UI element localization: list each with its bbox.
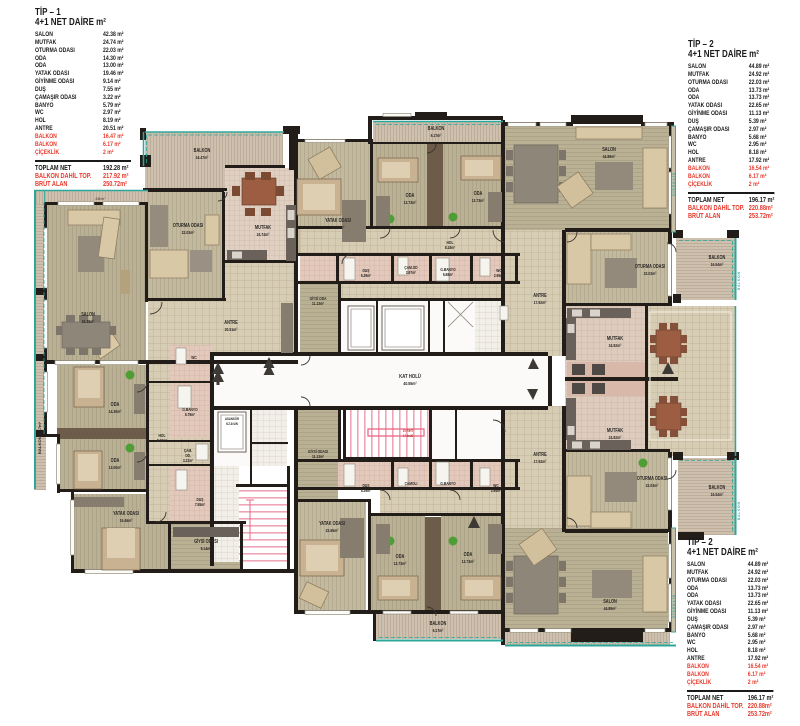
svg-text:5.79m²: 5.79m² <box>185 413 196 417</box>
svg-text:9.14m²: 9.14m² <box>201 546 212 552</box>
svg-text:ODA: ODA <box>464 552 473 558</box>
svg-text:ODA: ODA <box>111 458 120 464</box>
svg-text:BALKON: BALKON <box>709 255 726 261</box>
svg-text:2.95m²: 2.95m² <box>494 274 505 278</box>
svg-text:8.19m²: 8.19m² <box>157 439 168 443</box>
svg-text:G.BANYO: G.BANYO <box>440 482 455 486</box>
svg-text:ASANSÖR: ASANSÖR <box>225 416 240 422</box>
svg-text:17.92m²: 17.92m² <box>534 459 547 465</box>
svg-text:44.89m²: 44.89m² <box>604 606 617 612</box>
svg-text:DUŞ: DUŞ <box>363 269 370 273</box>
svg-text:Ç İ Ç E K L İ K: Ç İ Ç E K L İ K <box>672 594 676 618</box>
svg-text:SALON: SALON <box>81 312 95 318</box>
svg-text:2.97m²: 2.97m² <box>406 487 417 491</box>
svg-text:MUTFAK: MUTFAK <box>255 225 272 231</box>
svg-text:GİYSİ ODA: GİYSİ ODA <box>310 296 327 302</box>
svg-text:ODA: ODA <box>474 191 483 197</box>
svg-text:ÇAM.OD: ÇAM.OD <box>404 266 417 270</box>
svg-text:2.97m²: 2.97m² <box>189 361 200 365</box>
svg-text:17.5x28: 17.5x28 <box>403 434 413 438</box>
svg-text:YATAK ODASI: YATAK ODASI <box>113 511 139 517</box>
svg-text:20.51m²: 20.51m² <box>225 327 238 333</box>
svg-text:OD.: OD. <box>185 454 191 458</box>
svg-text:2.06 m²: 2.06 m² <box>95 197 104 201</box>
svg-text:ODA: ODA <box>111 402 120 408</box>
svg-text:DUŞ: DUŞ <box>363 484 370 488</box>
svg-text:ÇAM.: ÇAM. <box>184 449 192 453</box>
svg-text:13.00m²: 13.00m² <box>109 465 122 471</box>
svg-text:ODA: ODA <box>396 554 405 560</box>
svg-text:14.30m²: 14.30m² <box>109 409 122 415</box>
svg-text:10 RIHT: 10 RIHT <box>403 429 413 433</box>
svg-text:B A L K O N: B A L K O N <box>737 502 741 520</box>
svg-text:MUTFAK: MUTFAK <box>607 428 624 434</box>
svg-text:22.03m²: 22.03m² <box>644 271 657 277</box>
svg-text:B A L K O N: B A L K O N <box>737 272 741 290</box>
svg-text:6.17m²: 6.17m² <box>433 628 444 634</box>
svg-text:24.74m²: 24.74m² <box>257 232 270 238</box>
svg-text:GİYSİ ODASI: GİYSİ ODASI <box>194 537 218 544</box>
svg-text:22.65m²: 22.65m² <box>326 528 339 534</box>
svg-text:DUŞ: DUŞ <box>197 498 204 502</box>
svg-text:ANTRE: ANTRE <box>533 452 546 458</box>
svg-text:5.68m²: 5.68m² <box>443 273 454 277</box>
svg-text:42.38m²: 42.38m² <box>82 319 95 325</box>
svg-text:YATAK ODASI: YATAK ODASI <box>319 521 345 527</box>
svg-text:G.BANYO: G.BANYO <box>182 408 197 412</box>
svg-text:SALON: SALON <box>602 147 616 153</box>
svg-text:13.73m²: 13.73m² <box>462 559 475 565</box>
svg-text:YATAK ODASI: YATAK ODASI <box>325 218 351 224</box>
svg-text:ANTRE: ANTRE <box>533 293 546 299</box>
svg-text:11.13m²: 11.13m² <box>312 302 325 306</box>
svg-text:BALKON: BALKON <box>194 148 211 154</box>
svg-text:2.97m²: 2.97m² <box>406 271 417 275</box>
svg-text:5.39m²: 5.39m² <box>361 274 372 278</box>
svg-text:MUTFAK: MUTFAK <box>607 336 624 342</box>
svg-text:16.47m²: 16.47m² <box>196 155 209 161</box>
svg-text:6.17m²: 6.17m² <box>431 133 442 139</box>
svg-text:16.54m²: 16.54m² <box>711 262 724 268</box>
svg-text:7.55m²: 7.55m² <box>195 503 206 507</box>
svg-text:13.73m²: 13.73m² <box>394 561 407 567</box>
svg-text:KZ.3#UN: KZ.3#UN <box>226 422 238 426</box>
svg-text:WC: WC <box>493 484 499 488</box>
svg-text:5.39m²: 5.39m² <box>361 489 372 493</box>
svg-text:BALKON: BALKON <box>709 485 726 491</box>
svg-text:OTURMA ODASI: OTURMA ODASI <box>173 223 203 229</box>
svg-text:ODA: ODA <box>406 193 415 199</box>
svg-text:WC: WC <box>496 269 502 273</box>
svg-text:HOL: HOL <box>159 434 167 438</box>
svg-text:BALKON: BALKON <box>428 126 445 132</box>
svg-text:16.54m²: 16.54m² <box>711 492 724 498</box>
svg-text:8.18m²: 8.18m² <box>445 246 456 250</box>
svg-text:GİYSİ ODASI: GİYSİ ODASI <box>308 449 328 455</box>
svg-text:22.65m²: 22.65m² <box>332 225 345 231</box>
svg-text:G.BANYO: G.BANYO <box>440 268 455 272</box>
svg-text:2.95m²: 2.95m² <box>491 489 502 493</box>
svg-text:WC: WC <box>191 356 197 360</box>
svg-text:13.73m²: 13.73m² <box>472 198 485 204</box>
svg-text:24.92m²: 24.92m² <box>609 343 622 349</box>
svg-text:OTURMA ODASI: OTURMA ODASI <box>637 476 667 482</box>
svg-text:5.68m²: 5.68m² <box>443 487 454 491</box>
svg-text:24.92m²: 24.92m² <box>609 435 622 441</box>
svg-text:HOL: HOL <box>447 241 455 245</box>
svg-text:22.03m²: 22.03m² <box>182 230 195 236</box>
svg-text:19.46m²: 19.46m² <box>120 518 133 524</box>
svg-text:22.03m²: 22.03m² <box>646 483 659 489</box>
svg-text:40.55m²: 40.55m² <box>403 381 417 387</box>
svg-text:13.73m²: 13.73m² <box>404 200 417 206</box>
svg-text:OTURMA ODASI: OTURMA ODASI <box>635 264 665 270</box>
svg-text:3.22m²: 3.22m² <box>183 459 194 463</box>
svg-text:BALKON: BALKON <box>430 621 447 627</box>
svg-text:11.13m²: 11.13m² <box>312 455 325 459</box>
svg-text:44.89m²: 44.89m² <box>603 154 616 160</box>
svg-text:ÇAMOLI: ÇAMOLI <box>405 482 418 486</box>
svg-text:Ç İ Ç E K L İ K: Ç İ Ç E K L İ K <box>672 172 676 196</box>
svg-text:17.92m²: 17.92m² <box>534 300 547 306</box>
svg-text:BALKON 6.17m²: BALKON 6.17m² <box>38 421 41 454</box>
svg-text:SALON: SALON <box>603 599 617 605</box>
svg-text:ANTRE: ANTRE <box>224 320 237 326</box>
